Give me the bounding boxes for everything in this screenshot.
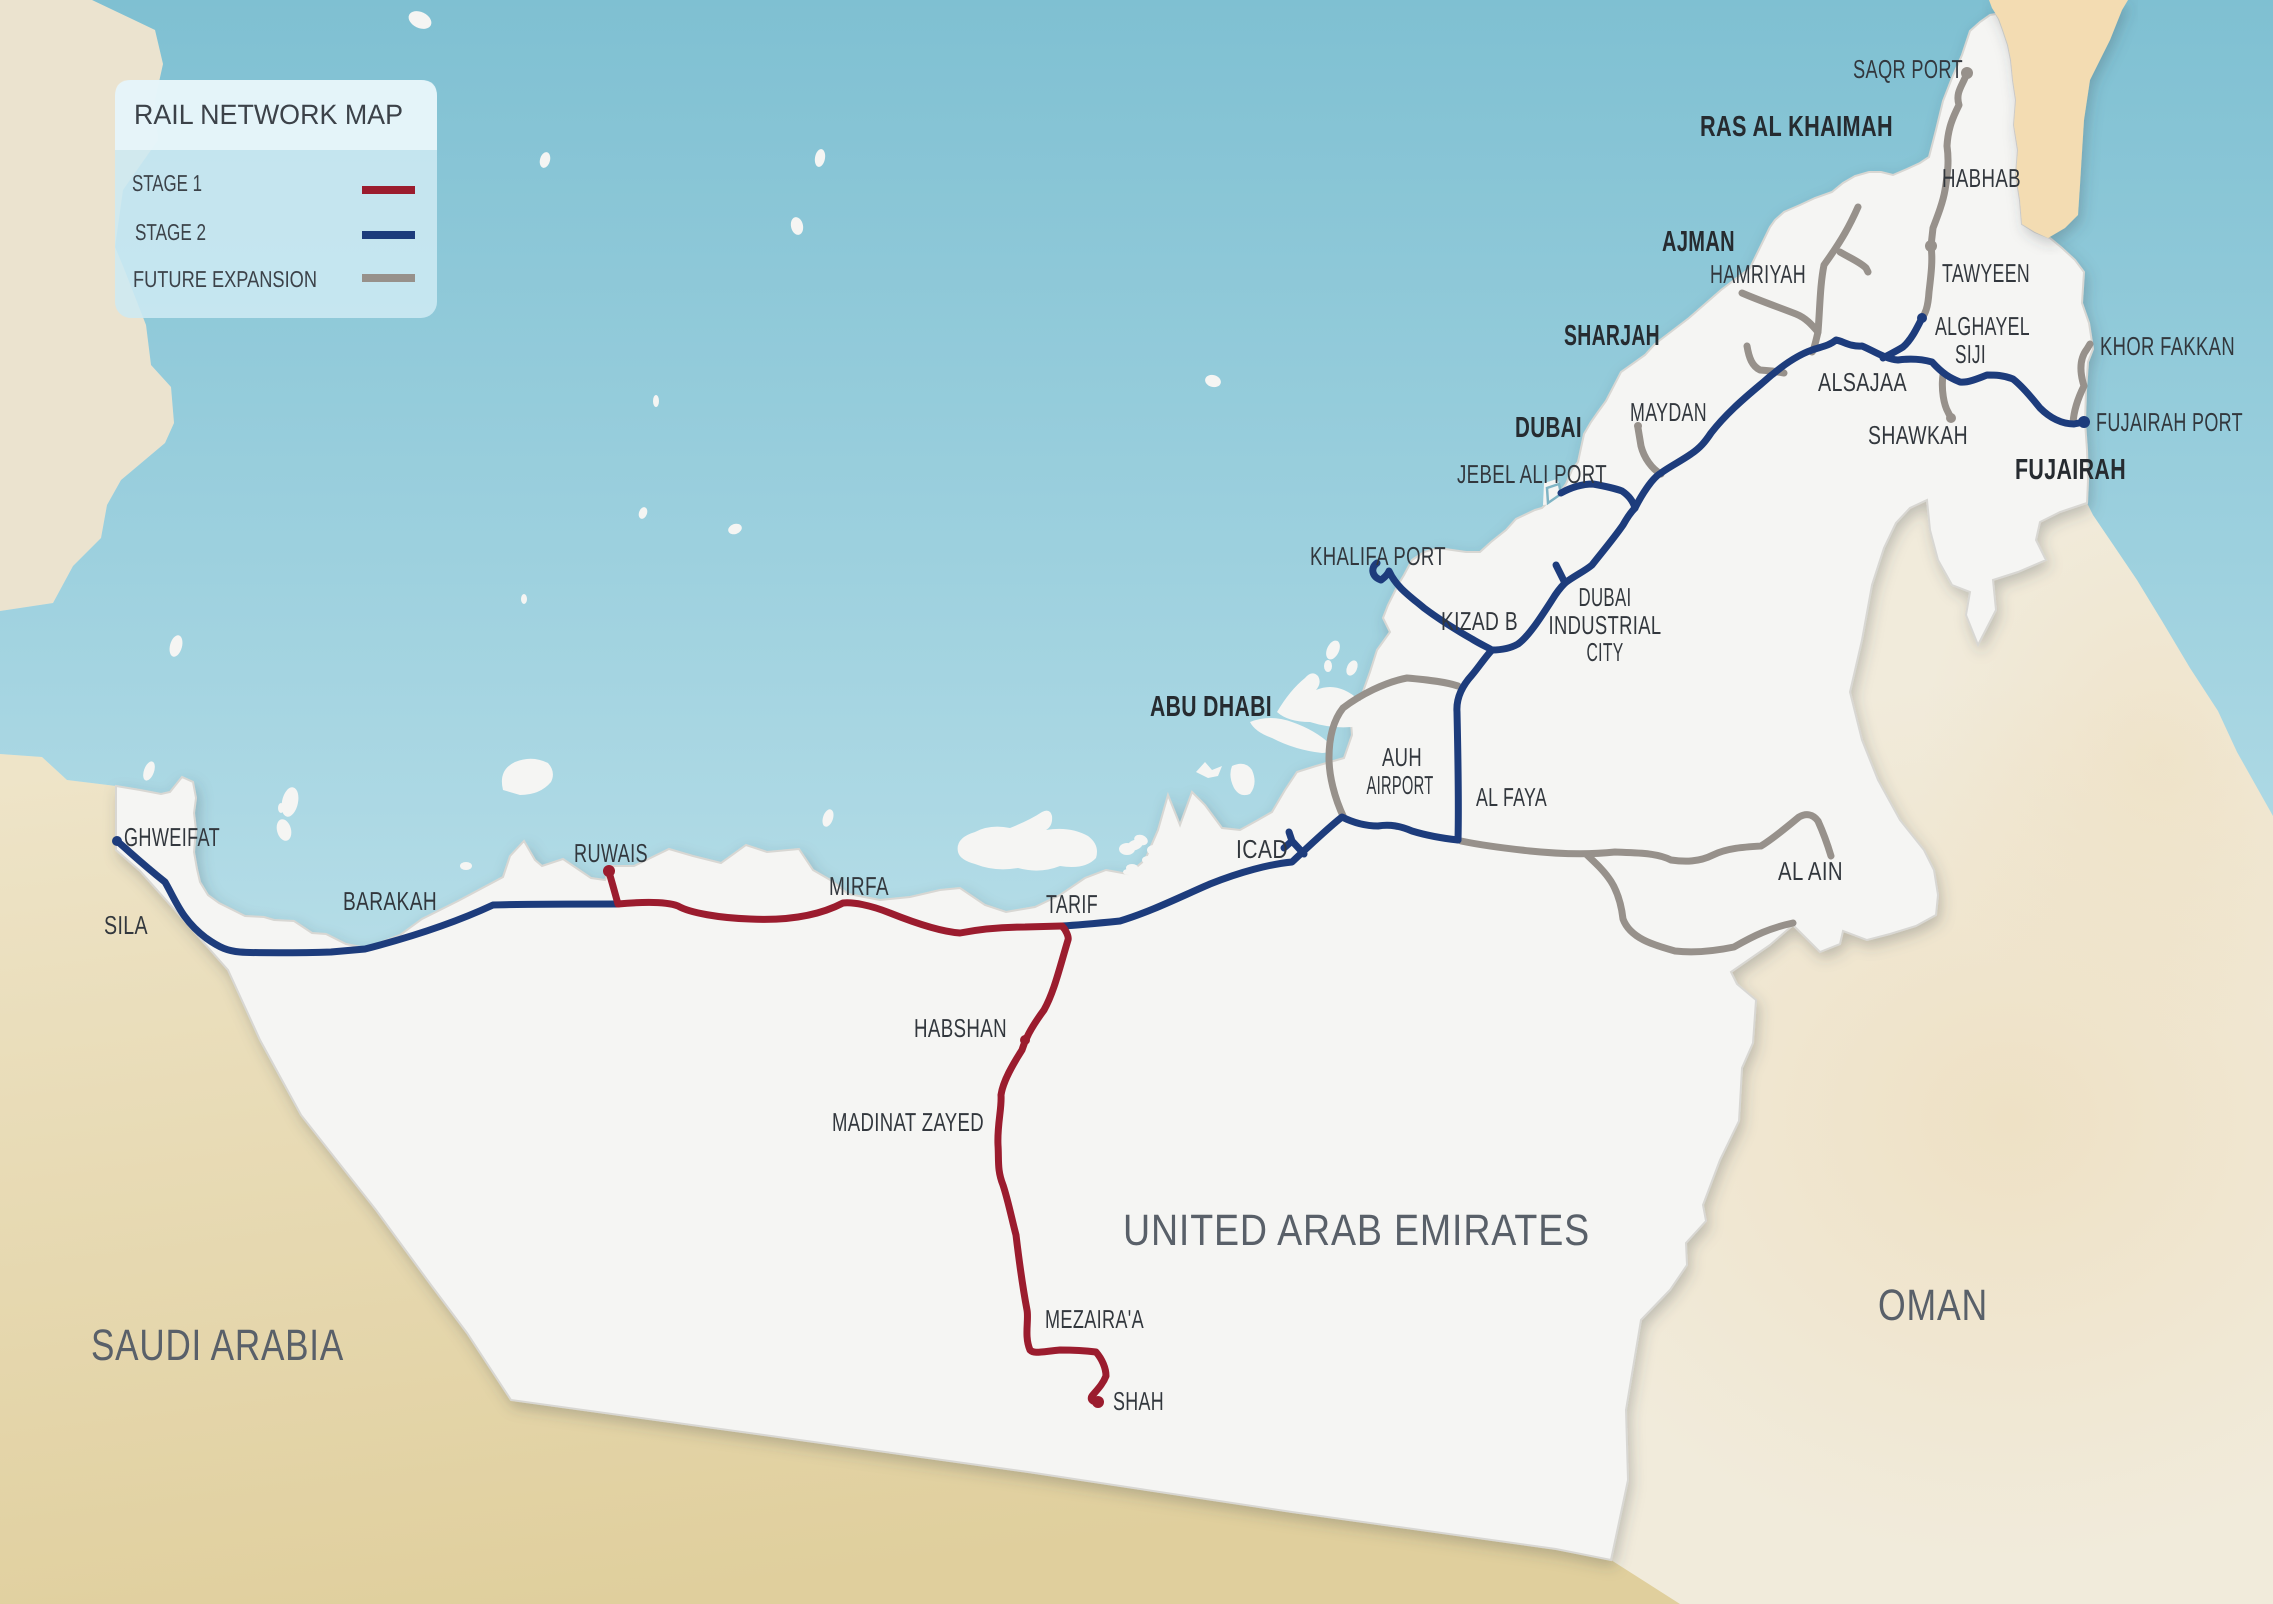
svg-text:HABHAB: HABHAB (1942, 163, 2021, 193)
svg-text:SILA: SILA (104, 910, 148, 940)
svg-text:STAGE 2: STAGE 2 (135, 219, 206, 245)
svg-text:FUJAIRAH: FUJAIRAH (2015, 454, 2126, 486)
svg-text:STAGE 1: STAGE 1 (132, 170, 202, 196)
svg-text:BARAKAH: BARAKAH (343, 886, 437, 916)
svg-text:AJMAN: AJMAN (1662, 226, 1735, 258)
svg-text:SAQR PORT: SAQR PORT (1853, 54, 1963, 84)
svg-text:AL FAYA: AL FAYA (1476, 782, 1547, 812)
svg-text:MAYDAN: MAYDAN (1630, 397, 1707, 427)
svg-text:DUBAI: DUBAI (1515, 412, 1582, 444)
svg-text:SIJI: SIJI (1955, 339, 1986, 369)
svg-text:HABSHAN: HABSHAN (914, 1013, 1007, 1043)
svg-text:KHALIFA PORT: KHALIFA PORT (1310, 541, 1446, 571)
svg-text:ALGHAYEL: ALGHAYEL (1935, 311, 2030, 341)
svg-text:ICAD: ICAD (1236, 834, 1288, 864)
svg-text:SHAH: SHAH (1113, 1386, 1164, 1416)
svg-text:AUH: AUH (1382, 742, 1422, 772)
svg-text:INDUSTRIAL: INDUSTRIAL (1549, 610, 1662, 640)
svg-text:TAWYEEN: TAWYEEN (1942, 258, 2030, 288)
svg-text:ABU DHABI: ABU DHABI (1150, 691, 1272, 723)
svg-text:MIRFA: MIRFA (829, 871, 889, 901)
svg-text:UNITED ARAB EMIRATES: UNITED ARAB EMIRATES (1123, 1206, 1590, 1255)
svg-text:HAMRIYAH: HAMRIYAH (1710, 259, 1806, 289)
svg-text:MADINAT ZAYED: MADINAT ZAYED (832, 1107, 984, 1137)
svg-text:KIZAD B: KIZAD B (1441, 606, 1518, 636)
svg-text:RAS AL KHAIMAH: RAS AL KHAIMAH (1700, 111, 1893, 143)
svg-text:KHOR FAKKAN: KHOR FAKKAN (2100, 331, 2235, 361)
svg-text:JEBEL ALI PORT: JEBEL ALI PORT (1457, 459, 1607, 489)
svg-text:ALSAJAA: ALSAJAA (1818, 367, 1907, 397)
svg-text:FUJAIRAH PORT: FUJAIRAH PORT (2096, 407, 2243, 437)
svg-text:GHWEIFAT: GHWEIFAT (124, 822, 220, 852)
svg-text:AIRPORT: AIRPORT (1367, 770, 1434, 800)
svg-text:SHARJAH: SHARJAH (1564, 320, 1660, 352)
svg-text:SHAWKAH: SHAWKAH (1868, 420, 1968, 450)
svg-text:SAUDI ARABIA: SAUDI ARABIA (91, 1321, 344, 1370)
svg-text:RAIL NETWORK MAP: RAIL NETWORK MAP (134, 99, 403, 130)
svg-text:TARIF: TARIF (1046, 889, 1098, 919)
svg-text:FUTURE EXPANSION: FUTURE EXPANSION (133, 266, 317, 292)
svg-text:RUWAIS: RUWAIS (574, 838, 648, 868)
svg-text:OMAN: OMAN (1878, 1281, 1988, 1330)
svg-text:DUBAI: DUBAI (1579, 582, 1632, 612)
svg-text:AL AIN: AL AIN (1778, 856, 1843, 886)
svg-text:CITY: CITY (1587, 637, 1624, 667)
svg-text:MEZAIRA'A: MEZAIRA'A (1045, 1304, 1144, 1334)
